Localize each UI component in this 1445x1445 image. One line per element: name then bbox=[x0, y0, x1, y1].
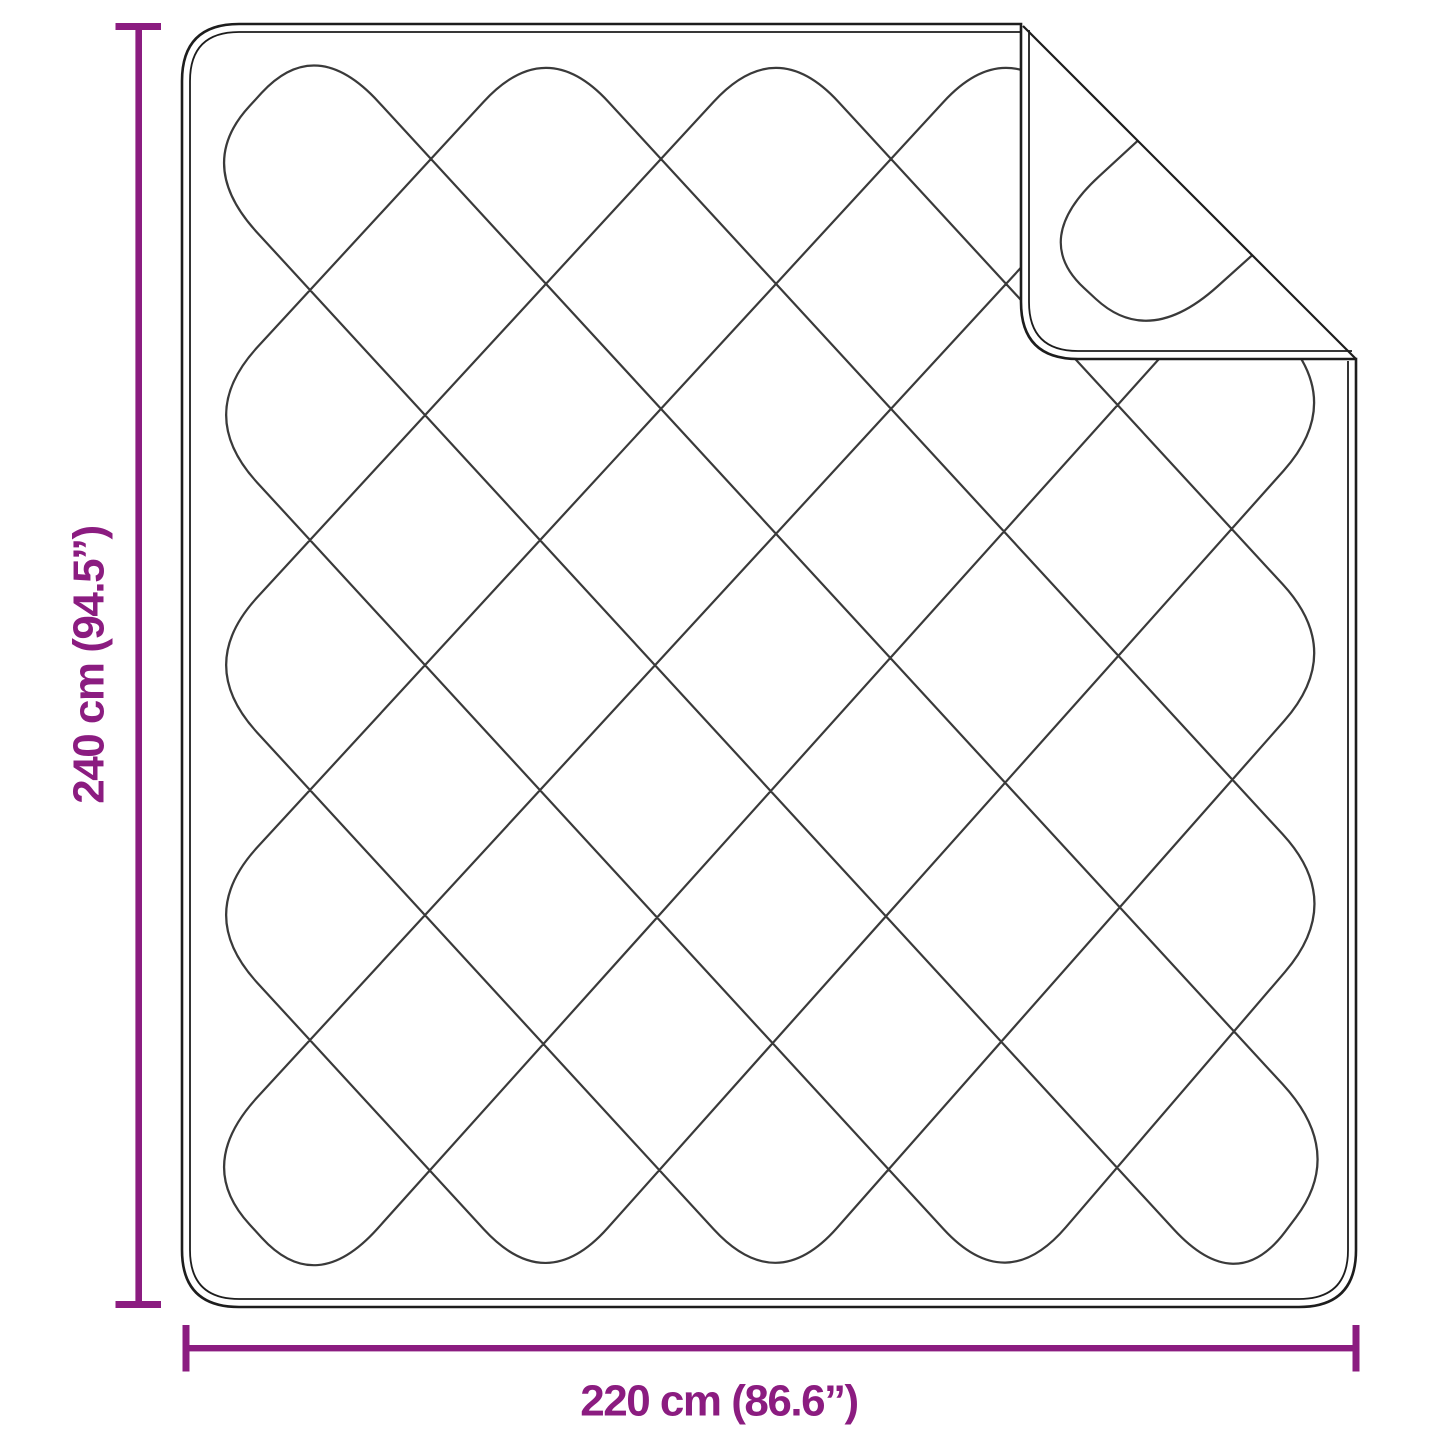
blanket-outline-outer bbox=[182, 24, 1356, 1307]
width-dimension-left-cap bbox=[183, 1325, 190, 1372]
width-dimension-line bbox=[183, 1345, 1360, 1351]
height-dimension-label: 240 cm (94.5”) bbox=[65, 526, 114, 803]
fold-flap-inner-line bbox=[1029, 30, 1352, 351]
height-dimension: 240 cm (94.5”) bbox=[65, 23, 162, 1308]
width-dimension-right-cap bbox=[1353, 1325, 1360, 1372]
height-dimension-top-cap bbox=[116, 23, 162, 30]
body-quilting bbox=[224, 64, 1318, 1265]
height-dimension-bottom-cap bbox=[116, 1301, 162, 1308]
width-dimension: 220 cm (86.6”) bbox=[183, 1325, 1360, 1426]
height-dimension-line bbox=[135, 23, 142, 1308]
width-dimension-label: 220 cm (86.6”) bbox=[580, 1377, 857, 1426]
blanket-dimension-drawing: 240 cm (94.5”) 220 cm (86.6”) bbox=[0, 0, 1445, 1445]
flap-quilting bbox=[1061, 0, 1445, 321]
fold-crease-line bbox=[1023, 26, 1356, 359]
product-dimension-diagram: 240 cm (94.5”) 220 cm (86.6”) bbox=[0, 0, 1445, 1445]
blanket-outline-inner bbox=[190, 32, 1348, 1299]
